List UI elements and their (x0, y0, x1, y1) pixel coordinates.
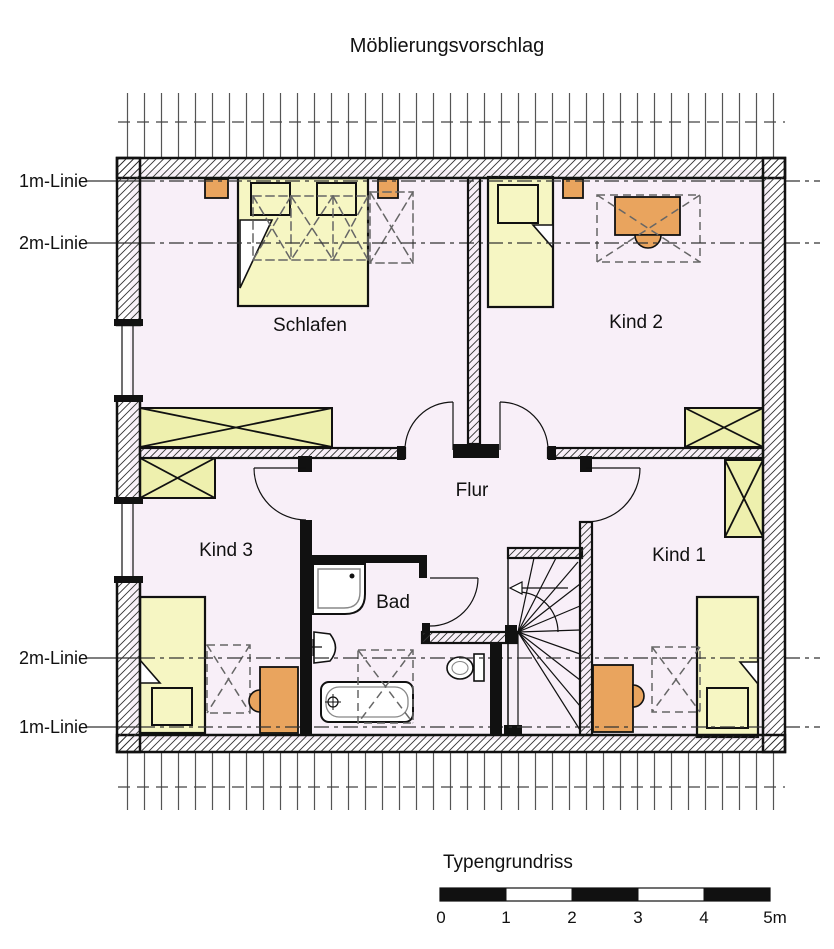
shower-head (350, 574, 355, 579)
room-label-schlafen: Schlafen (273, 315, 347, 336)
scale-tick-1: 1 (501, 908, 510, 927)
desk (260, 667, 298, 733)
guide-label-2m-top: 2m-Linie (19, 233, 88, 253)
roof-band-top (118, 93, 785, 158)
side-table (563, 179, 583, 198)
nightstand-left (205, 179, 228, 198)
wall-kind3-bad (300, 520, 312, 735)
pillow (251, 183, 290, 215)
page-title: Möblierungsvorschlag (350, 35, 545, 57)
wardrobe-schlafen (140, 408, 332, 447)
scale-tick-4: 4 (699, 908, 708, 927)
wall-cap (505, 625, 517, 643)
wall-stairs-top (508, 548, 582, 558)
wall-exterior-top (117, 158, 785, 178)
guide-label-2m-bottom: 2m-Linie (19, 648, 88, 668)
door-jamb (298, 456, 312, 472)
pillow (707, 688, 748, 728)
wall-exterior-bottom (117, 735, 785, 752)
guide-label-1m-top: 1m-Linie (19, 171, 88, 191)
wall-exterior-left (117, 580, 140, 752)
roof-band-bottom (118, 752, 785, 810)
scale-tick-2: 2 (567, 908, 576, 927)
wall-schlafen-kind2 (468, 178, 480, 444)
door-jamb (548, 446, 556, 460)
nightstand-right (378, 179, 398, 198)
scale-tick-0: 0 (436, 908, 445, 927)
footer-caption: Typengrundriss (443, 852, 573, 873)
wall-exterior-left (117, 399, 140, 501)
scale-bar: Typengrundriss 0 1 2 3 4 5m (436, 852, 787, 927)
scale-tick-3: 3 (633, 908, 642, 927)
wardrobe-kind2 (685, 408, 763, 447)
room-label-kind2: Kind 2 (609, 312, 663, 333)
room-label-kind3: Kind 3 (199, 540, 253, 561)
guide-label-1m-bottom: 1m-Linie (19, 717, 88, 737)
scale-tick-5m: 5m (763, 908, 787, 927)
desk (615, 197, 680, 235)
wall-main-left (140, 448, 405, 458)
wall-bad-corner (419, 555, 427, 578)
door-jamb (580, 456, 592, 472)
wall-stairs-kind1 (580, 522, 592, 735)
shower (313, 564, 365, 614)
wall-bad-lower (422, 632, 517, 643)
wall-exterior-left (117, 158, 140, 325)
pillow (498, 185, 538, 223)
pillow (152, 688, 192, 725)
room-label-flur: Flur (456, 480, 489, 501)
wall-exterior-right (763, 158, 785, 752)
bathtub (321, 682, 413, 722)
wardrobe-kind1 (725, 460, 763, 537)
floorplan-drawing: Möblierungsvorschlag Schlafen Kind 2 Kin… (0, 0, 834, 949)
desk (593, 665, 633, 732)
wardrobe-kind3 (140, 458, 215, 498)
wall-bad-top (300, 555, 427, 563)
door-jamb (453, 444, 499, 458)
room-label-bad: Bad (376, 592, 410, 613)
floorplan-page: Möblierungsvorschlag Schlafen Kind 2 Kin… (0, 0, 834, 949)
room-label-kind1: Kind 1 (652, 545, 706, 566)
wall-toilet-nook (490, 643, 502, 735)
door-jamb (397, 446, 405, 460)
